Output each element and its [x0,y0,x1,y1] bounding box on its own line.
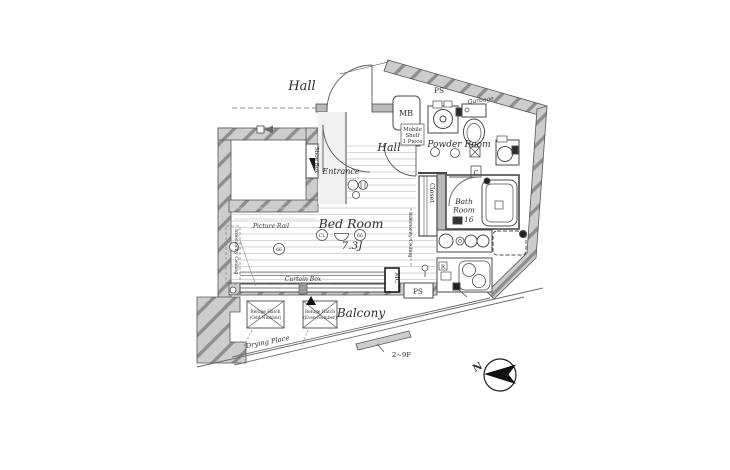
balcony-details [197,288,543,367]
passage-faucet-icon [422,265,428,271]
balcony-label: Balcony [336,306,385,320]
floor-range-label: 2~9F [392,351,411,359]
bath-tub [482,180,517,226]
wall-stair-block [197,297,246,363]
kitchen [422,230,527,297]
toilet-flush-icon [465,108,469,112]
stove-burner [463,264,476,277]
wall-entry-north-right [372,104,394,112]
hatch-direction-icon [306,296,316,305]
washer-faucet-icon [456,108,462,116]
balcony-rail-lines [197,288,543,367]
curtain-box-lines [240,272,400,276]
wall-closet-bath [437,174,446,236]
entrance-tile [318,112,346,204]
kitchen-burner [477,235,489,247]
kitchen-cabinet-box [441,272,451,280]
intercom-symbol [359,181,368,190]
stove-burner [473,275,486,288]
ps-bottom-label: PS [413,288,423,296]
floor-plan: Hall MB PS Garbage Mobile Shelf 1 Piece … [0,0,730,470]
curtain-box-label: Curtain Box [285,276,322,283]
symbol-a-label: 66 [357,233,363,239]
section-marker-box [257,126,264,133]
hall-interior-label: Hall [376,141,401,154]
ps-top-label: PS [434,86,444,95]
entrance-label: Entrance [321,167,359,176]
inferiority-ceiling-left-label: Inferiority Ceiling [233,229,239,275]
floor-range-leader [377,344,384,352]
kitchen-outlet-icon [453,283,460,290]
wall-west [218,128,231,306]
bath-control-panel [495,201,503,209]
mobile-shelf-line3: 1 Piece [403,139,423,145]
bed-room-label: Bed Room [318,216,384,231]
compass-north-label: N [471,361,484,375]
washer-tap-box [433,101,442,108]
washing-machine-center-icon [440,116,446,122]
kitchen-sink [439,234,453,248]
powder-room-label: Powder Room [426,140,490,150]
c-symbol-label: C [474,169,479,177]
wall-bedroom-north [229,200,318,212]
symbol-b-label: 66 [276,247,282,253]
switch-symbol [353,192,360,199]
wall-faucet-icon [230,287,236,293]
washer-outlet-box [444,101,452,107]
bath-room-label-line2: Room [452,206,475,215]
kitchen-faucet-dot [459,240,462,243]
wall-entry-north-left [316,104,327,112]
passage-flooring [416,241,436,280]
compass [484,359,516,391]
refuge-hatch-left-line2: (Odd Number) [250,316,282,321]
vanity-shelf [497,136,507,142]
refuge-hatch-left-line1: Refuge Hatch [250,310,280,315]
drying-place-label: Drying Place [244,334,290,350]
bath-room-size-label: 1116 [454,215,473,224]
refuge-hatch-right-line1: Refuge Hatch [305,310,335,315]
floor-plan-drawing: Hall MB PS Garbage Mobile Shelf 1 Piece … [0,0,730,470]
balcony-wall-segment [356,331,411,350]
mb-label: MB [399,109,413,118]
hall-exterior-label: Hall [287,79,315,94]
refrigerator-outlet-icon [520,231,527,238]
bath-tub-inner [486,184,513,222]
refuge-hatch-right-line2: (Even Number) [303,316,337,321]
closet-label: Closet [428,183,435,203]
window-sash-center [299,283,307,294]
shoe-box-label: Shoe Box [313,147,319,174]
vanity-sink [498,147,513,162]
shower-head-icon [484,178,490,184]
kitchen-burner [465,235,477,247]
inferiority-ceiling-right-label: Inferiority Ceiling [407,212,413,258]
cl-symbol-label: CL [319,233,325,239]
compass-needle-icon [484,365,516,385]
hall-light-symbol [348,180,358,190]
picture-rail-label: Picture Rail [252,223,289,230]
bed-room-size-label: 7.3J [342,240,364,252]
vanity-faucet-icon [512,146,518,154]
mc-label: MC [393,272,401,284]
